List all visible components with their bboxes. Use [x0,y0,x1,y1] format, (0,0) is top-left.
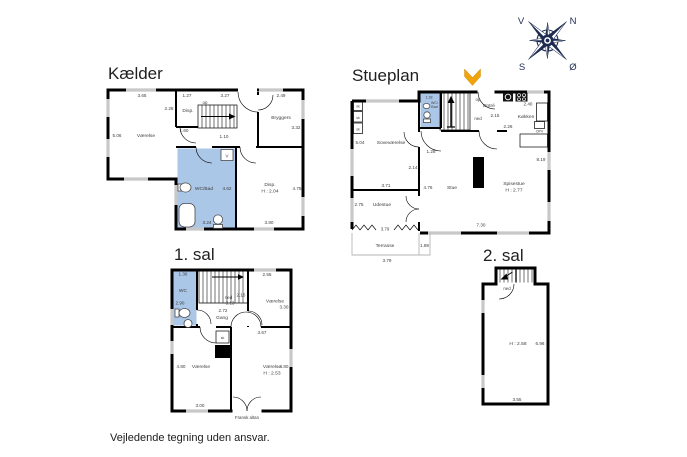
stueplan-title: Stueplan [352,66,419,85]
dim-label: 2.14 [409,165,418,170]
dim-label: 2.26 [504,124,513,129]
sal2-labels: ned H : 2.58 6.96 3.55 [503,286,545,402]
floor-1sal: 1. sal [172,245,291,420]
room-label-udestue: Udestue [373,202,391,208]
dim-label: 3.24 [203,220,212,225]
dim-label: 2.55 [263,272,272,277]
dim-label: 1.10 [220,134,229,139]
room-label-wc: WC [179,288,188,294]
dim-label: 3.80 [265,220,274,225]
floor-2sal: 2. sal ned H : 2.58 6.96 3.55 [483,246,548,404]
closet-label: sk [356,128,360,132]
room-label-disp2: Disp. [264,182,275,188]
dim-label: 3.30 [280,305,289,310]
kaelder-title: Kælder [108,64,163,83]
chimney-block [215,345,230,358]
stueplan-wc-fixtures [423,103,430,122]
dim-label: 2.72 [219,308,228,313]
dim-label: 3.27 [221,93,230,98]
floorplan-canvas: V N S Ø Kælder [0,0,687,457]
dim-label: 3.55 [513,397,522,402]
bathtub-icon [179,204,195,228]
dim-label: 1.36 [179,272,188,277]
dim-label: 6.96 [536,341,545,346]
stove-icon [516,93,528,102]
kaelder-stairs-arrow [229,114,236,120]
dim-label: 2.90 [176,301,185,306]
stueplan-stairs-arrow [448,96,455,103]
kaelder-stairs [198,105,237,128]
sal2-title: 2. sal [483,246,524,265]
stueplan-stairs [440,93,470,130]
closet-label: sk [356,116,360,120]
dim-label: 3.00 [196,403,205,408]
stairs-ned-label: ned [503,286,511,291]
room-label-spisestue: Spisestue [503,181,525,187]
dim-label: 5.04 [356,140,365,145]
sal2-stairs [500,270,532,283]
compass-rose: V N S Ø [518,16,577,73]
floorplan-page: V N S Ø Kælder [0,0,687,457]
dim-label: 3.79 [381,227,390,232]
kitchen-island [520,134,548,147]
closet-label: sk [221,336,225,340]
room-label-gang: Gang [216,315,228,321]
floor-kaelder: Kælder [108,64,303,229]
room-label-vaerelse: Værelse [137,133,155,139]
dim-label: 1.89 [420,243,429,248]
dim-label: 3.67 [258,330,267,335]
room-label-kokken: Køkken [518,114,535,120]
room-label-fransk-altan: Fransk altan [235,415,260,420]
dim-label: 3.32 [292,125,301,130]
stairs-op-label: op [203,100,208,105]
room-label-terrasse: Terrasse [376,243,395,249]
dim-label: 3.71 [382,183,391,188]
closet-label: sk [356,105,360,109]
dim-label: 4.75 [293,186,302,191]
sink-icon [184,320,192,328]
dim-label: 4.80 [280,364,289,369]
sal1-title: 1. sal [174,245,215,264]
stairs-ned-label: ned [474,116,482,121]
compass-letter-south: S [519,62,525,73]
dim-label: 2.40 [524,102,533,107]
room-label-wc-bad: WC/Bad [195,186,213,192]
toilet-icon [424,112,430,118]
stueplan-labels: 1.28 WC/ Bad op ned Entré 2.15 2.26 Køkk… [355,96,546,264]
washer-label: V [226,154,229,159]
sal1-door-arcs [197,310,262,411]
entrance-arrow-icon [465,69,481,86]
dim-label: 8.19 [537,157,546,162]
dim-label: 1.27 [183,93,192,98]
compass-letter-east: Ø [569,62,577,73]
dim-label: 3.65 [138,93,147,98]
dim-label: 1.28 [427,149,436,154]
kaelder-top-door-opening [238,87,257,94]
ceiling-height-label: H : 2.58 [509,341,526,347]
dim-label: 2.49 [277,93,286,98]
dim-label: 1.60 [180,128,189,133]
dim-label: 7.30 [477,223,486,228]
disclaimer-text: Vejledende tegning uden ansvar. [110,432,270,444]
dishwasher-label: OPV [536,130,544,134]
ceiling-height-label: H : 2.53 [263,371,280,377]
dim-label: 2.15 [491,113,500,118]
room-label-stue: Stue [447,185,457,191]
room-label-sovevaerelse: Soveværelse [377,140,406,146]
dim-label: 3.13 [226,301,235,306]
compass-letter-west: V [518,16,525,27]
dishwasher-box [535,122,545,129]
dim-label: 2.75 [355,202,364,207]
dim-label: 3.79 [383,258,392,263]
ceiling-height-label: H : 2.04 [261,189,278,195]
sink-icon [423,103,430,108]
stairs-op-label: op [476,97,481,102]
dim-label: 2.28 [165,106,174,111]
stairs-ned-label: ned [225,295,233,300]
dim-label: 4.80 [177,364,186,369]
kitchen-counter [537,103,548,121]
room-label-entre: Entré [483,103,495,109]
sal1-stairs [199,271,248,303]
room-label-vaerelse-sw: Værelse [192,364,210,370]
dim-label: 4.76 [424,185,433,190]
room-label-bryggers: Bryggers [271,115,291,121]
dim-label: 5.06 [113,133,122,138]
compass-letter-north: N [570,16,577,27]
toilet-icon [213,215,222,224]
dim-label: 4.62 [223,186,232,191]
stueplan-entry-opening [478,89,495,96]
ceiling-height-label: H : 2.77 [505,188,522,194]
room-label-disp: Disp. [182,108,193,114]
fireplace-block [473,157,484,188]
floor-stueplan: Stueplan [352,66,549,263]
dim-label: 1.28 [426,96,433,100]
toilet-icon [175,309,179,317]
dim-label: 2.16 [237,293,246,298]
room-label-wc: Bad [431,105,437,109]
